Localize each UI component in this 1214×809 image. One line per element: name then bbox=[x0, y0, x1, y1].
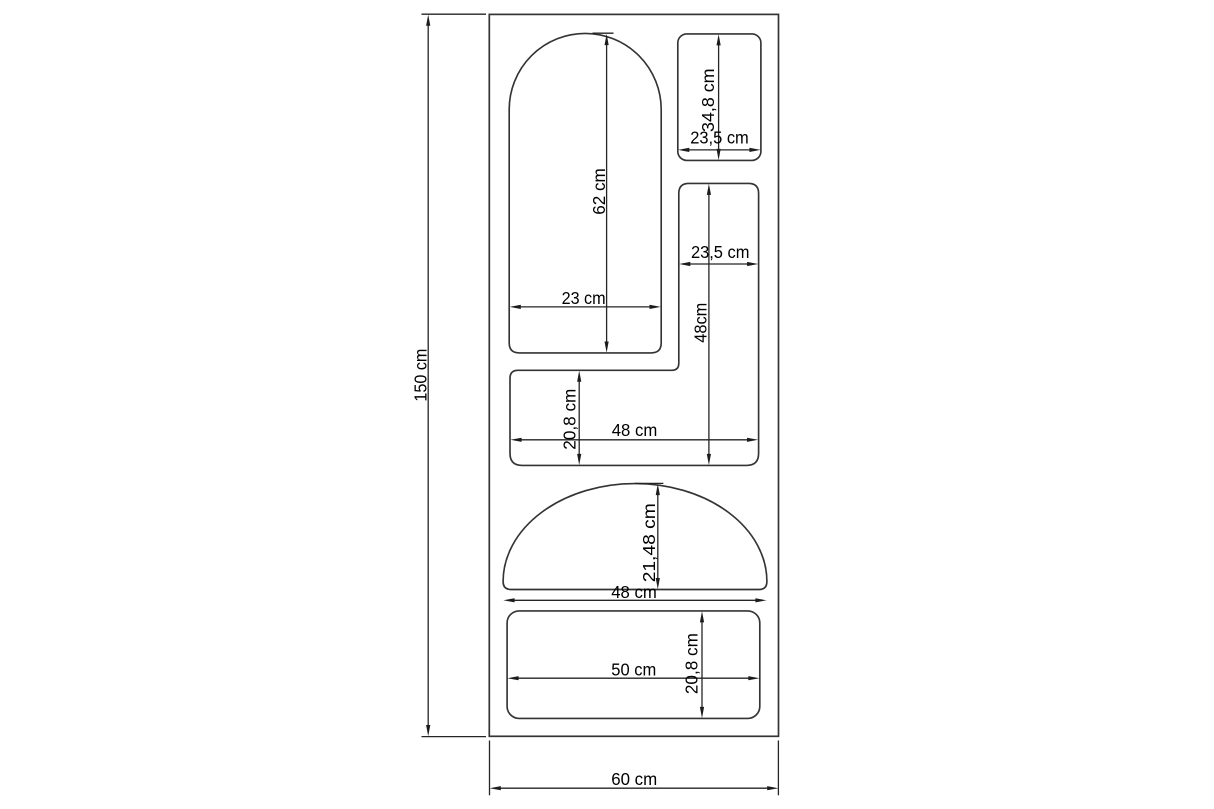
svg-text:23,5 cm: 23,5 cm bbox=[690, 128, 749, 148]
svg-text:23,5 cm: 23,5 cm bbox=[691, 242, 750, 262]
svg-text:20,8 cm: 20,8 cm bbox=[682, 633, 702, 694]
svg-text:48 cm: 48 cm bbox=[611, 582, 657, 602]
svg-text:60 cm: 60 cm bbox=[611, 769, 657, 789]
svg-text:34,8 cm: 34,8 cm bbox=[698, 68, 718, 132]
svg-text:21,48 cm: 21,48 cm bbox=[639, 503, 659, 582]
svg-text:48 cm: 48 cm bbox=[612, 420, 658, 440]
svg-text:62 cm: 62 cm bbox=[589, 168, 609, 215]
svg-text:150 cm: 150 cm bbox=[410, 349, 430, 402]
svg-text:50 cm: 50 cm bbox=[611, 660, 656, 680]
svg-text:20,8 cm: 20,8 cm bbox=[560, 389, 580, 450]
svg-text:48cm: 48cm bbox=[691, 303, 711, 343]
svg-text:23 cm: 23 cm bbox=[562, 288, 606, 308]
